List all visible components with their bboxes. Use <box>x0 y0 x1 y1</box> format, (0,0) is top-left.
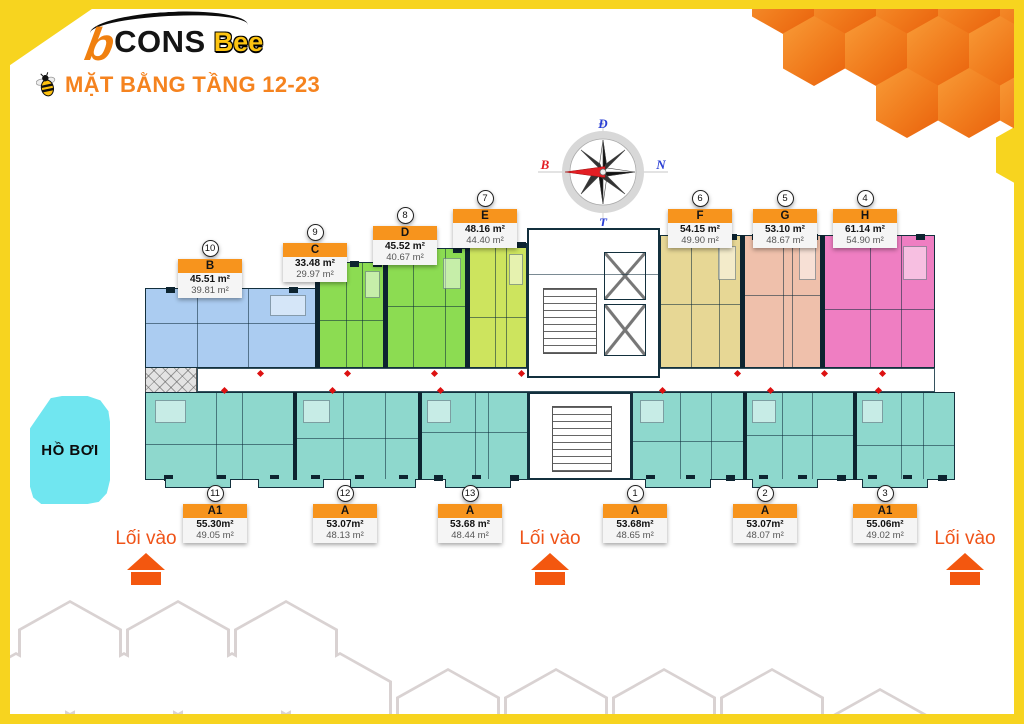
unit-letter: D <box>373 226 437 240</box>
entrance-left: Lối vào <box>104 528 188 585</box>
room-wall <box>216 393 217 479</box>
entrance-arrow-base <box>950 572 980 585</box>
unit-number: 6 <box>692 190 709 207</box>
bathroom <box>303 400 330 423</box>
unit-area-gross: 54.15 m² <box>668 224 732 235</box>
unit-areas: 53.07m²48.07 m² <box>733 518 797 543</box>
room-wall <box>746 435 854 436</box>
entrance-arrow-icon <box>531 553 569 570</box>
stairs <box>543 288 597 354</box>
unit-number: 1 <box>627 485 644 502</box>
unit-label-E: 7E48.16 m²44.40 m² <box>453 188 517 248</box>
wall-pier <box>726 475 735 481</box>
room-wall <box>870 236 871 367</box>
entrance-arrow-base <box>535 572 565 585</box>
stair-elevator-core <box>527 228 660 378</box>
unit-area-net: 49.05 m² <box>183 530 247 541</box>
unit-area-net: 48.67 m² <box>753 235 817 246</box>
unit-block-A1 <box>855 392 955 480</box>
unit-letter: G <box>753 209 817 223</box>
unit-area-gross: 53.68 m² <box>438 519 502 530</box>
party-wall <box>740 235 745 368</box>
unit-number: 3 <box>877 485 894 502</box>
unit-area-net: 29.97 m² <box>283 269 347 280</box>
compass-label-bottom: T <box>599 215 608 226</box>
room-wall <box>495 244 496 367</box>
bathroom <box>862 400 884 423</box>
unit-block-A <box>632 392 745 480</box>
room-wall <box>711 393 712 479</box>
unit-number: 12 <box>337 485 354 502</box>
room-wall <box>318 320 384 321</box>
bathroom <box>270 295 306 316</box>
stairwell <box>528 392 632 480</box>
bathroom <box>155 400 187 423</box>
room-wall <box>633 441 744 442</box>
entrance-label: Lối vào <box>508 528 592 550</box>
unit-area-net: 54.90 m² <box>833 235 897 246</box>
entrance-arrow-icon <box>946 553 984 570</box>
unit-letter: A1 <box>853 504 917 518</box>
bathroom <box>443 258 461 288</box>
unit-block-A <box>295 392 420 480</box>
room-wall <box>856 445 954 446</box>
floor-plan: 10B45.51 m²39.81 m²9C33.48 m²29.97 m²8D4… <box>0 0 1024 724</box>
room-wall <box>823 309 934 310</box>
unit-number: 10 <box>202 240 219 257</box>
entrance-center: Lối vào <box>508 528 592 585</box>
party-wall <box>743 392 747 480</box>
wall-pier <box>289 287 298 293</box>
compass-label-right: N <box>655 157 666 172</box>
bathroom <box>903 246 927 279</box>
room-wall <box>661 304 741 305</box>
room-wall <box>296 438 419 439</box>
unit-number: 8 <box>397 207 414 224</box>
unit-area-net: 39.81 m² <box>178 285 242 296</box>
wall-pier <box>938 475 947 481</box>
room-wall <box>475 393 476 479</box>
bee-icon <box>36 72 58 98</box>
page-title-row: MẶT BẰNG TẦNG 12-23 <box>36 72 320 98</box>
room-wall <box>691 236 692 367</box>
unit-number: 9 <box>307 224 324 241</box>
unit-label-A: 12A53.07m²48.13 m² <box>313 483 377 543</box>
unit-letter: A <box>313 504 377 518</box>
stairs <box>552 406 612 472</box>
room-wall <box>386 306 466 307</box>
unit-label-G: 5G53.10 m²48.67 m² <box>753 188 817 248</box>
unit-letter: A1 <box>183 504 247 518</box>
room-wall <box>146 323 316 324</box>
unit-area-gross: 61.14 m² <box>833 224 897 235</box>
unit-areas: 61.14 m²54.90 m² <box>833 223 897 248</box>
entrance-arrow-icon <box>127 553 165 570</box>
party-wall <box>418 392 422 480</box>
wall-pier <box>916 234 925 240</box>
unit-area-net: 44.40 m² <box>453 235 517 246</box>
wall-pier <box>837 475 846 481</box>
room-wall <box>248 289 249 367</box>
room-wall <box>901 393 902 479</box>
elevator <box>604 304 646 356</box>
entrance-label: Lối vào <box>104 528 188 550</box>
unit-areas: 55.06m²49.02 m² <box>853 518 917 543</box>
room-wall <box>901 236 902 367</box>
page-title: MẶT BẰNG TẦNG 12-23 <box>65 72 320 98</box>
unit-areas: 48.16 m²44.40 m² <box>453 223 517 248</box>
room-wall <box>362 263 363 367</box>
unit-letter: B <box>178 259 242 273</box>
frame-right <box>1014 0 1024 724</box>
unit-area-gross: 55.30m² <box>183 519 247 530</box>
unit-label-A: 1A53.68m²48.65 m² <box>603 483 667 543</box>
bathroom <box>752 400 776 423</box>
unit-areas: 53.07m²48.13 m² <box>313 518 377 543</box>
unit-label-A: 13A53.68 m²48.44 m² <box>438 483 502 543</box>
room-wall <box>488 393 489 479</box>
room-wall <box>421 432 527 433</box>
unit-number: 7 <box>477 190 494 207</box>
room-wall <box>792 236 793 367</box>
unit-letter: A <box>733 504 797 518</box>
bathroom <box>718 246 736 279</box>
unit-label-H: 4H61.14 m²54.90 m² <box>833 188 897 248</box>
wall-pier <box>517 242 526 248</box>
unit-block-B <box>145 288 317 368</box>
unit-area-gross: 53.10 m² <box>753 224 817 235</box>
room-wall <box>680 393 681 479</box>
unit-area-gross: 53.07m² <box>313 519 377 530</box>
wall-pier <box>434 475 443 481</box>
unit-area-net: 48.07 m² <box>733 530 797 541</box>
unit-number: 5 <box>777 190 794 207</box>
unit-label-F: 6F54.15 m²49.90 m² <box>668 188 732 248</box>
room-wall <box>413 249 414 367</box>
unit-number: 4 <box>857 190 874 207</box>
entrance-arrow-base <box>131 572 161 585</box>
frame-bottom <box>0 714 1024 724</box>
swimming-pool: HỒ BƠI <box>30 396 110 504</box>
party-wall <box>383 248 388 368</box>
unit-label-A1: 11A155.30m²49.05 m² <box>183 483 247 543</box>
unit-label-C: 9C33.48 m²29.97 m² <box>283 222 347 282</box>
unit-letter: E <box>453 209 517 223</box>
room-wall <box>468 317 526 318</box>
unit-area-gross: 53.07m² <box>733 519 797 530</box>
party-wall <box>465 243 470 368</box>
compass-label-top: Đ <box>597 118 608 131</box>
unit-area-net: 48.13 m² <box>313 530 377 541</box>
party-wall <box>853 392 857 480</box>
unit-areas: 54.15 m²49.90 m² <box>668 223 732 248</box>
unit-block-A1 <box>145 392 295 480</box>
logo: bCONSBee <box>86 20 263 68</box>
unit-letter: A <box>603 504 667 518</box>
room-wall <box>197 289 198 367</box>
unit-areas: 45.51 m²39.81 m² <box>178 273 242 298</box>
room-wall <box>385 393 386 479</box>
unit-area-net: 49.90 m² <box>668 235 732 246</box>
unit-areas: 53.68 m²48.44 m² <box>438 518 502 543</box>
pool-label: HỒ BƠI <box>41 442 98 459</box>
unit-area-net: 48.65 m² <box>603 530 667 541</box>
unit-letter: C <box>283 243 347 257</box>
floor-plan-poster: bCONSBee MẶT BẰNG TẦNG 12-23 <box>0 0 1024 724</box>
party-wall <box>293 392 297 480</box>
unit-block-G <box>742 235 822 368</box>
compass-rose: Đ N T B <box>538 118 668 226</box>
unit-block-A <box>745 392 855 480</box>
bathroom <box>509 254 523 286</box>
unit-area-gross: 45.52 m² <box>373 241 437 252</box>
room-wall <box>242 393 243 479</box>
unit-area-gross: 48.16 m² <box>453 224 517 235</box>
unit-label-A: 2A53.07m²48.07 m² <box>733 483 797 543</box>
unit-number: 2 <box>757 485 774 502</box>
unit-areas: 33.48 m²29.97 m² <box>283 257 347 282</box>
unit-area-net: 48.44 m² <box>438 530 502 541</box>
wall-pier <box>350 261 359 267</box>
room-wall <box>343 393 344 479</box>
unit-letter: A <box>438 504 502 518</box>
unit-area-gross: 33.48 m² <box>283 258 347 269</box>
unit-areas: 55.30m²49.05 m² <box>183 518 247 543</box>
unit-area-net: 49.02 m² <box>853 530 917 541</box>
room-wall <box>783 236 784 367</box>
unit-areas: 53.10 m²48.67 m² <box>753 223 817 248</box>
unit-letter: H <box>833 209 897 223</box>
unit-block-A <box>420 392 528 480</box>
unit-label-A1: 3A155.06m²49.02 m² <box>853 483 917 543</box>
unit-number: 13 <box>462 485 479 502</box>
unit-area-net: 40.67 m² <box>373 252 437 263</box>
unit-label-B: 10B45.51 m²39.81 m² <box>178 238 242 298</box>
wall-pier <box>510 475 519 481</box>
unit-areas: 45.52 m²40.67 m² <box>373 240 437 265</box>
unit-letter: F <box>668 209 732 223</box>
entrance-label: Lối vào <box>923 528 1007 550</box>
bathroom <box>365 271 380 298</box>
room-wall <box>146 444 294 445</box>
unit-block-H <box>822 235 935 368</box>
core-wall <box>529 274 658 275</box>
bathroom <box>640 400 664 423</box>
unit-areas: 53.68m²48.65 m² <box>603 518 667 543</box>
party-wall <box>820 235 825 368</box>
unit-number: 11 <box>207 485 224 502</box>
unit-area-gross: 45.51 m² <box>178 274 242 285</box>
unit-area-gross: 55.06m² <box>853 519 917 530</box>
bathroom <box>427 400 450 423</box>
room-wall <box>743 295 821 296</box>
unit-block-E <box>467 243 527 368</box>
entrance-right: Lối vào <box>923 528 1007 585</box>
bathroom <box>799 246 817 279</box>
unit-area-gross: 53.68m² <box>603 519 667 530</box>
room-wall <box>506 244 507 367</box>
elevator <box>604 252 646 300</box>
unit-block-F <box>660 235 742 368</box>
logo-letter-b: b <box>82 24 117 64</box>
unit-label-D: 8D45.52 m²40.67 m² <box>373 205 437 265</box>
compass-label-left: B <box>540 157 550 172</box>
room-wall <box>923 393 924 479</box>
unit-block-D <box>385 248 467 368</box>
frame-left <box>0 0 10 724</box>
frame-top <box>0 0 1024 9</box>
wall-pier <box>166 287 175 293</box>
